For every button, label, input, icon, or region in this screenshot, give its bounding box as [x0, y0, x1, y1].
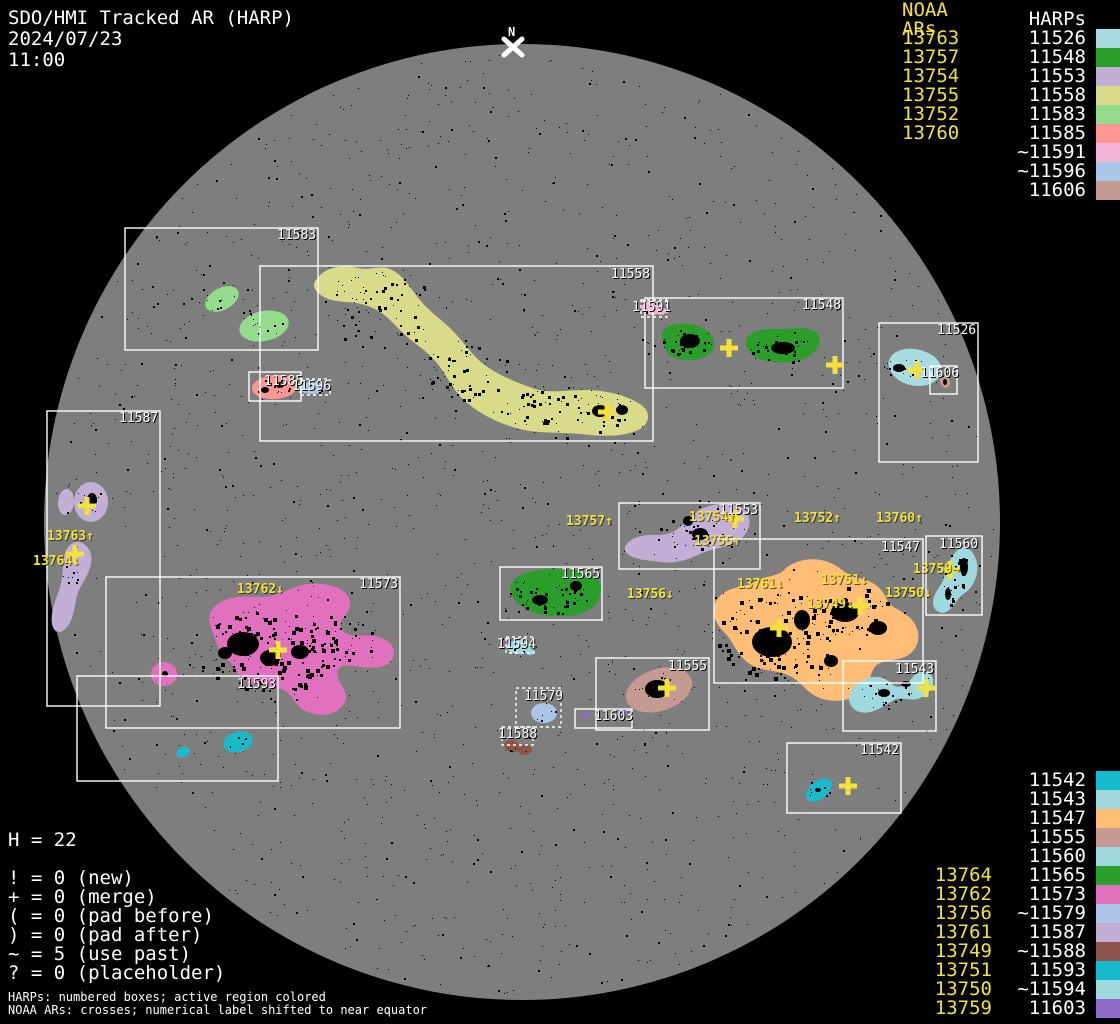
color-swatch [1096, 828, 1120, 847]
color-swatch [1096, 29, 1120, 48]
legend-row: 11555 [902, 828, 1120, 847]
color-swatch [1096, 923, 1120, 942]
color-swatch [1096, 961, 1120, 980]
color-swatch [1096, 790, 1120, 809]
ar-core [291, 645, 309, 659]
ar-core [878, 689, 890, 697]
ar-core [794, 610, 810, 630]
ar-core [680, 334, 700, 348]
north-marker-label: N [508, 25, 515, 39]
ar-region-11591 [656, 307, 666, 315]
color-swatch [1096, 162, 1120, 181]
legend-row: 11606 [902, 181, 1120, 200]
solar-disk [44, 44, 1000, 1000]
legend-row: 1376011585 [902, 124, 1120, 143]
time-label: 11:00 [8, 50, 65, 71]
noaa-ar-number: 13760 [902, 124, 992, 143]
color-swatch [1096, 181, 1120, 200]
ar-core [276, 382, 284, 388]
ar-core [824, 655, 838, 667]
ar-core [532, 595, 548, 605]
legend-row: 11542 [902, 771, 1120, 790]
noaa-ar-number: 13759 [902, 999, 992, 1018]
ar-region-11603 [621, 710, 629, 716]
color-swatch [1096, 86, 1120, 105]
color-swatch [1096, 847, 1120, 866]
ar-core [570, 581, 582, 591]
footnote-harps: HARPs: numbered boxes; active region col… [8, 991, 326, 1003]
color-swatch [1096, 771, 1120, 790]
color-swatch [1096, 67, 1120, 86]
ar-core [218, 647, 232, 659]
ar-core [692, 528, 708, 540]
ar-core [815, 788, 821, 792]
color-swatch [1096, 885, 1120, 904]
legend-row: ~11596 [902, 162, 1120, 181]
page-title: SDO/HMI Tracked AR (HARP) [8, 8, 294, 29]
color-swatch [1096, 980, 1120, 999]
color-swatch [1096, 105, 1120, 124]
ar-core [616, 405, 628, 415]
harp-number: 11603 [992, 999, 1086, 1018]
counter-line: ? = 0 (placeholder) [8, 964, 225, 983]
ar-core [869, 621, 887, 635]
status-counters: ! = 0 (new)+ = 0 (merge)( = 0 (pad befor… [8, 869, 225, 983]
harp-count: H = 22 [8, 831, 77, 850]
ar-core [771, 342, 795, 354]
ar-region-11596 [299, 382, 325, 394]
ar-core [960, 558, 968, 576]
color-swatch [1096, 124, 1120, 143]
date-label: 2024/07/23 [8, 29, 122, 50]
footnote-noaa: NOAA ARs: crosses; numerical label shift… [8, 1004, 427, 1016]
ar-core [901, 681, 911, 687]
ar-core [893, 364, 905, 372]
color-swatch [1096, 999, 1120, 1018]
ar-core [943, 379, 947, 385]
ar-core [261, 387, 269, 393]
color-swatch [1096, 866, 1120, 885]
color-swatch [1096, 942, 1120, 961]
legend-row: 1375911603 [902, 999, 1120, 1018]
legend-row: ~11591 [902, 143, 1120, 162]
color-swatch [1096, 904, 1120, 923]
color-swatch [1096, 809, 1120, 828]
ar-core [945, 588, 951, 600]
harp-tracker-screen: SDO/HMI Tracked AR (HARP) 2024/07/23 11:… [0, 0, 1120, 1024]
ar-core [683, 516, 693, 526]
legend-row: 11547 [902, 809, 1120, 828]
ar-region-11603 [581, 712, 589, 718]
legend-top-right: NOAA ARs HARPs 1376311526137571154813754… [902, 10, 1120, 200]
legend-bottom-right: 1154211543115471155511560137641156513762… [902, 771, 1120, 1018]
ar-region-11579 [531, 703, 557, 723]
legend-row: 11543 [902, 790, 1120, 809]
color-swatch [1096, 48, 1120, 67]
harp-number: 11606 [992, 181, 1086, 200]
color-swatch [1096, 143, 1120, 162]
ar-region-11594 [526, 649, 534, 655]
ar-core [752, 627, 792, 657]
